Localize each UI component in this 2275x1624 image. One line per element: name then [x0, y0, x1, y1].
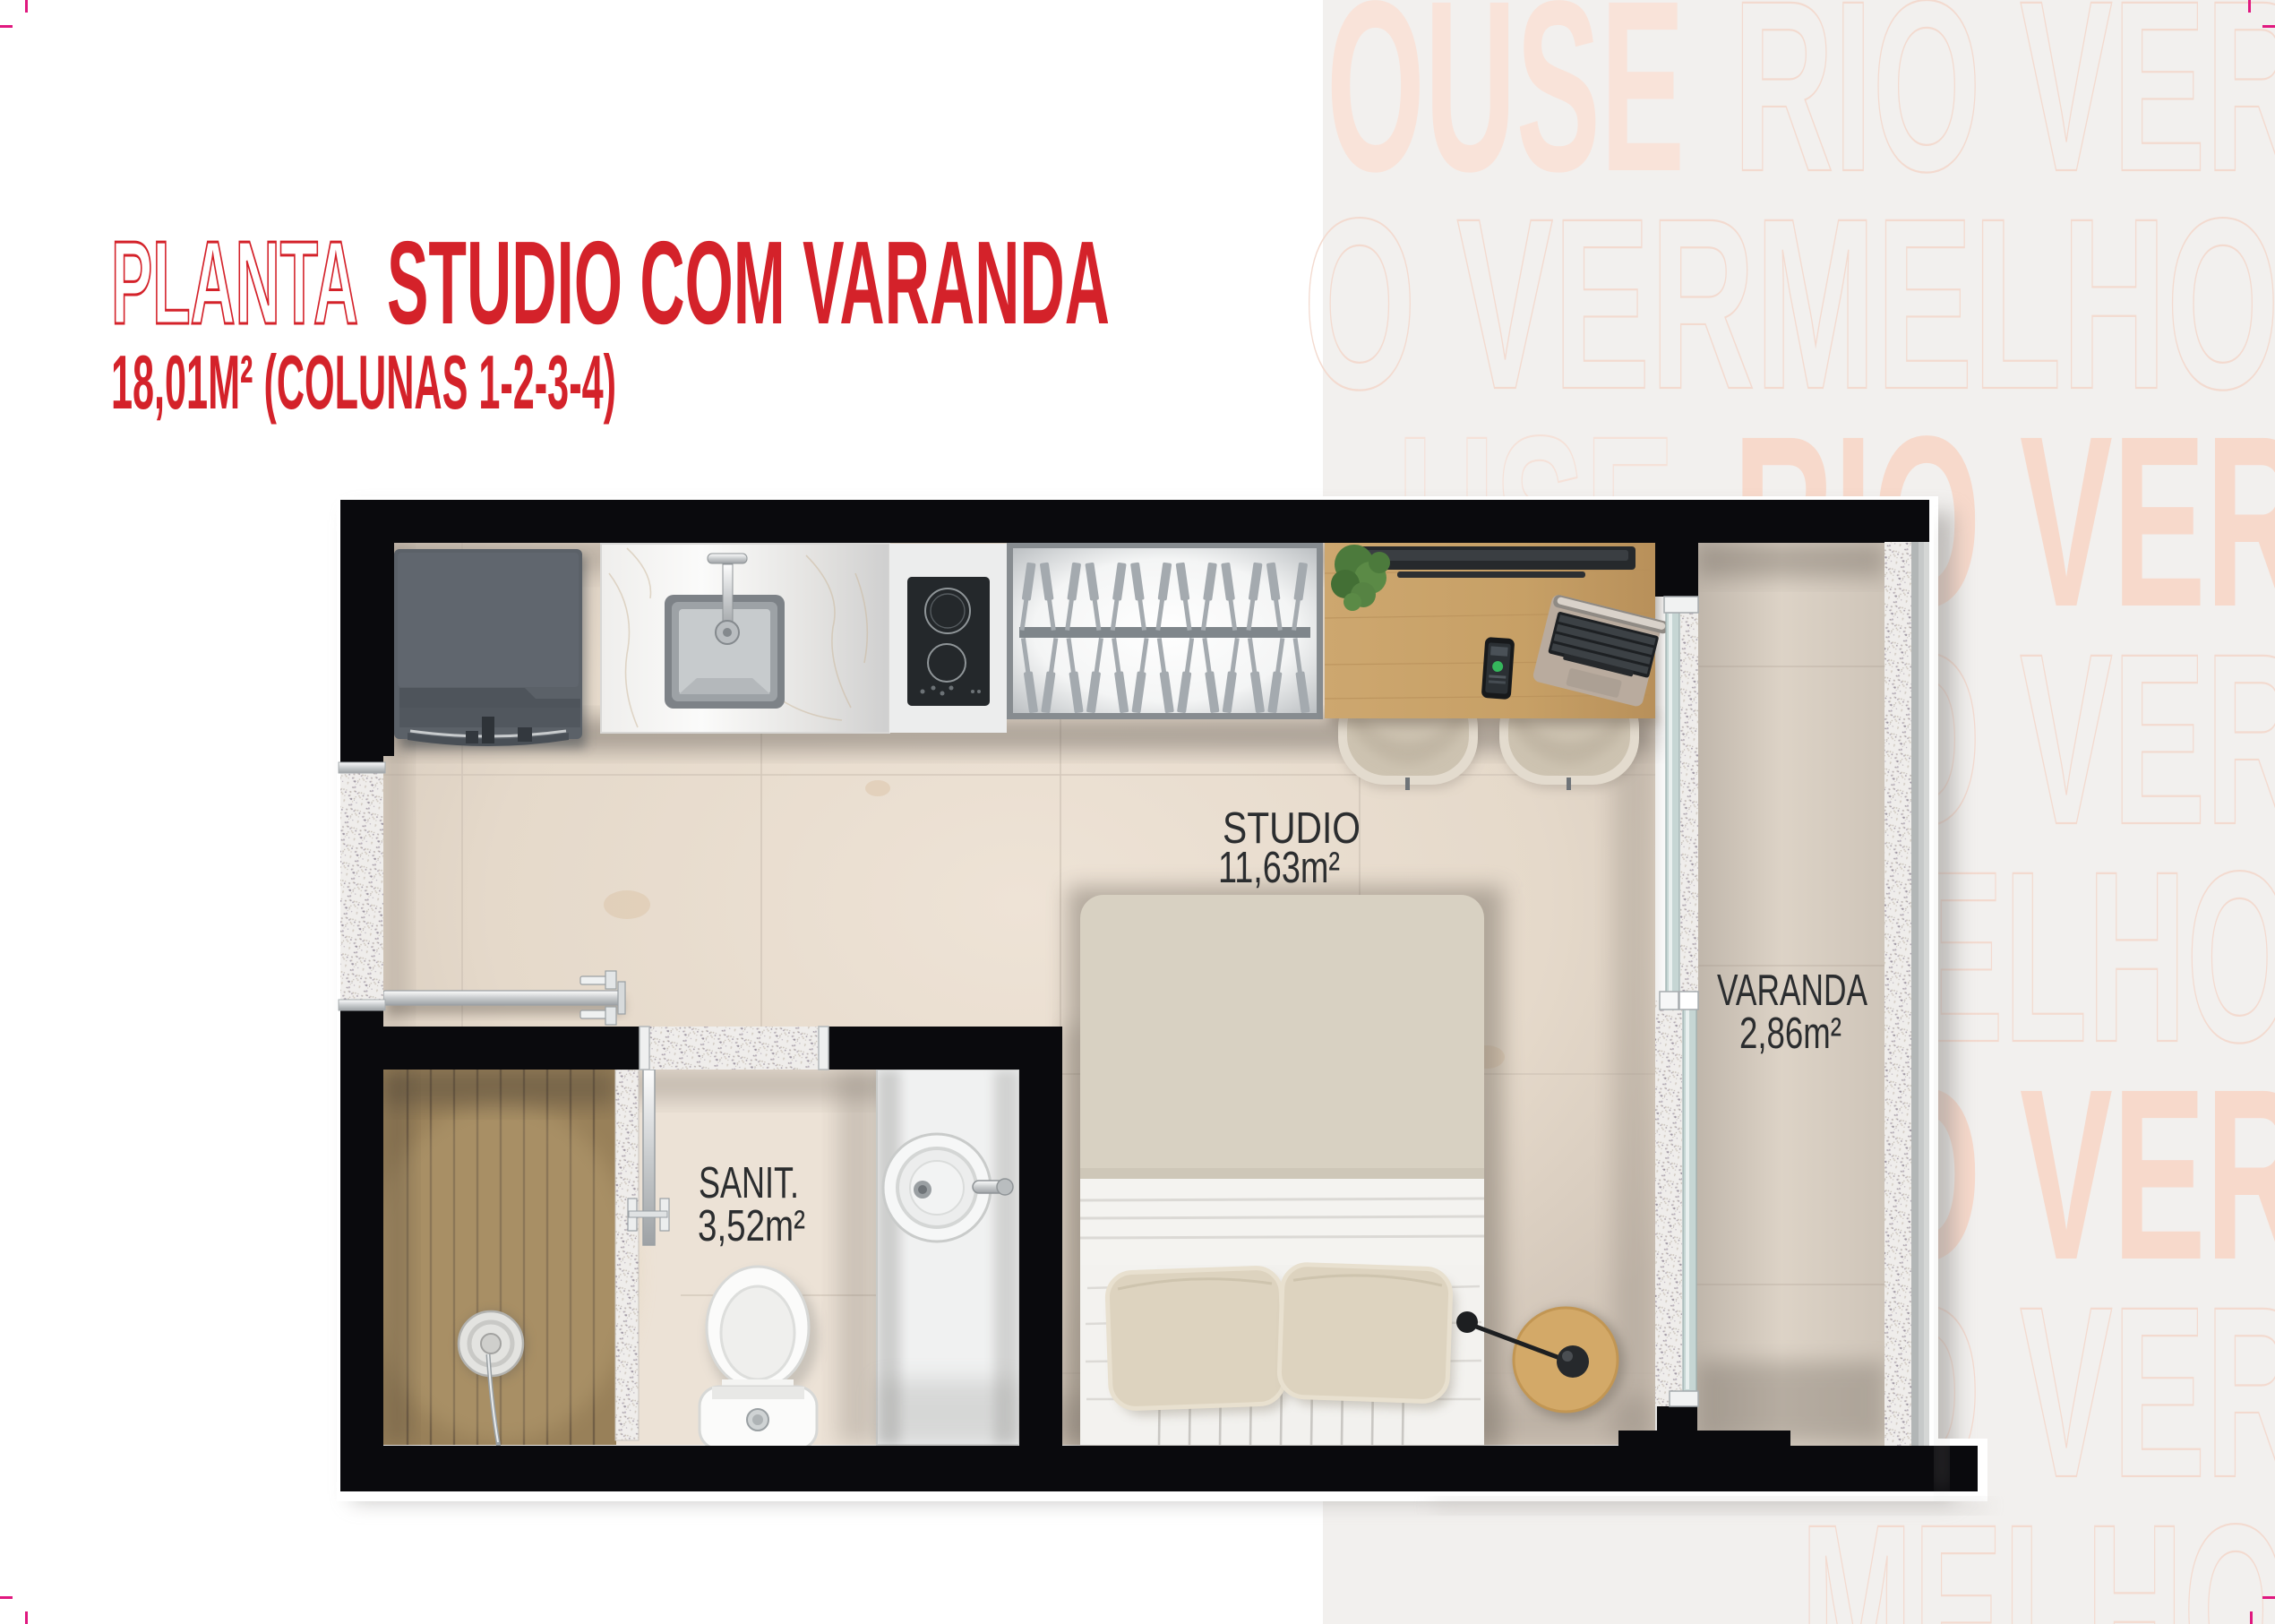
- svg-text:PLANTA: PLANTA: [111, 217, 358, 348]
- svg-text:SANIT.: SANIT.: [699, 1159, 799, 1207]
- svg-text:18,01M² (COLUNAS 1-2-3-4): 18,01M² (COLUNAS 1-2-3-4): [111, 340, 616, 425]
- svg-text:11,63m²: 11,63m²: [1218, 844, 1340, 892]
- svg-text:STUDIO COM VARANDA: STUDIO COM VARANDA: [387, 217, 1110, 348]
- svg-text:VARANDA: VARANDA: [1717, 967, 1867, 1015]
- svg-text:2,86m²: 2,86m²: [1739, 1010, 1841, 1058]
- svg-text:3,52m²: 3,52m²: [698, 1202, 805, 1250]
